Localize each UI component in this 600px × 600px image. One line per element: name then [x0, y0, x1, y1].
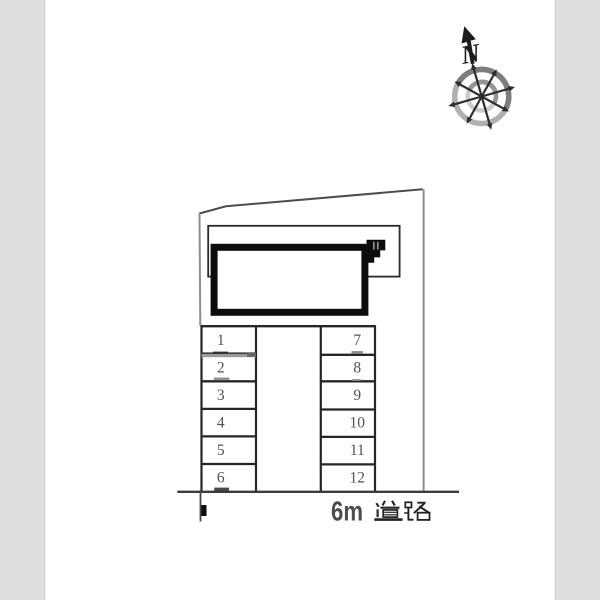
svg-text:12: 12 — [350, 470, 366, 487]
svg-text:8: 8 — [353, 359, 361, 376]
svg-text:10: 10 — [350, 415, 366, 432]
svg-text:2: 2 — [217, 359, 225, 376]
svg-text:6: 6 — [217, 470, 225, 487]
svg-text:1: 1 — [217, 332, 225, 349]
svg-text:9: 9 — [353, 387, 361, 404]
svg-text:6m: 6m — [331, 496, 363, 527]
svg-text:7: 7 — [353, 332, 361, 349]
svg-text:3: 3 — [217, 387, 225, 404]
svg-text:5: 5 — [217, 442, 225, 459]
svg-text:N: N — [458, 38, 484, 70]
svg-text:4: 4 — [217, 415, 225, 432]
svg-text:11: 11 — [350, 442, 365, 459]
